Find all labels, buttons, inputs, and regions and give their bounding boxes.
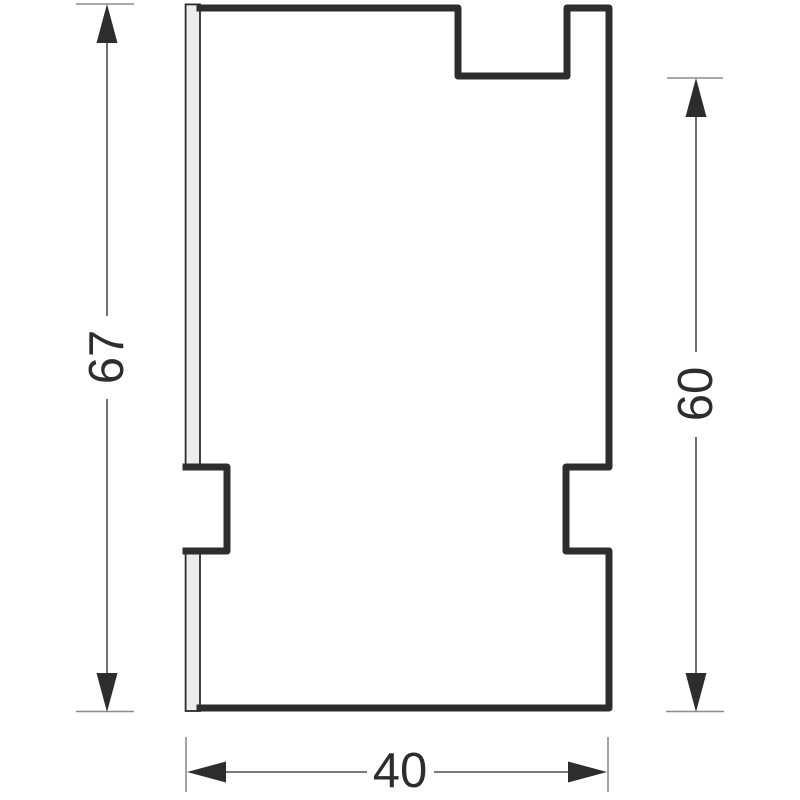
- left-strip-upper-segment: [186, 4, 200, 467]
- dimension-label-bottom-width: 40: [373, 744, 428, 798]
- profile-left-notch-outline: [186, 467, 227, 551]
- technical-drawing: 67 60 40: [0, 0, 800, 800]
- drawing-canvas: 67 60 40: [0, 0, 800, 800]
- dimension-label-right-height: 60: [669, 367, 723, 422]
- profile-shape: [186, 8, 609, 708]
- dimension-left-height: 67: [76, 4, 134, 712]
- arrow-down-icon: [97, 673, 118, 712]
- left-strip: [186, 4, 200, 711]
- left-strip-lower-segment: [186, 551, 200, 711]
- dimension-right-height: 60: [666, 78, 724, 712]
- profile-outline: [200, 8, 609, 708]
- arrow-down-icon: [686, 673, 707, 712]
- arrow-right-icon: [568, 762, 607, 783]
- dimension-label-left-height: 67: [80, 330, 134, 385]
- arrow-up-icon: [686, 78, 707, 117]
- arrow-up-icon: [97, 4, 118, 43]
- dimension-bottom-width: 40: [186, 737, 608, 798]
- arrow-left-icon: [187, 762, 226, 783]
